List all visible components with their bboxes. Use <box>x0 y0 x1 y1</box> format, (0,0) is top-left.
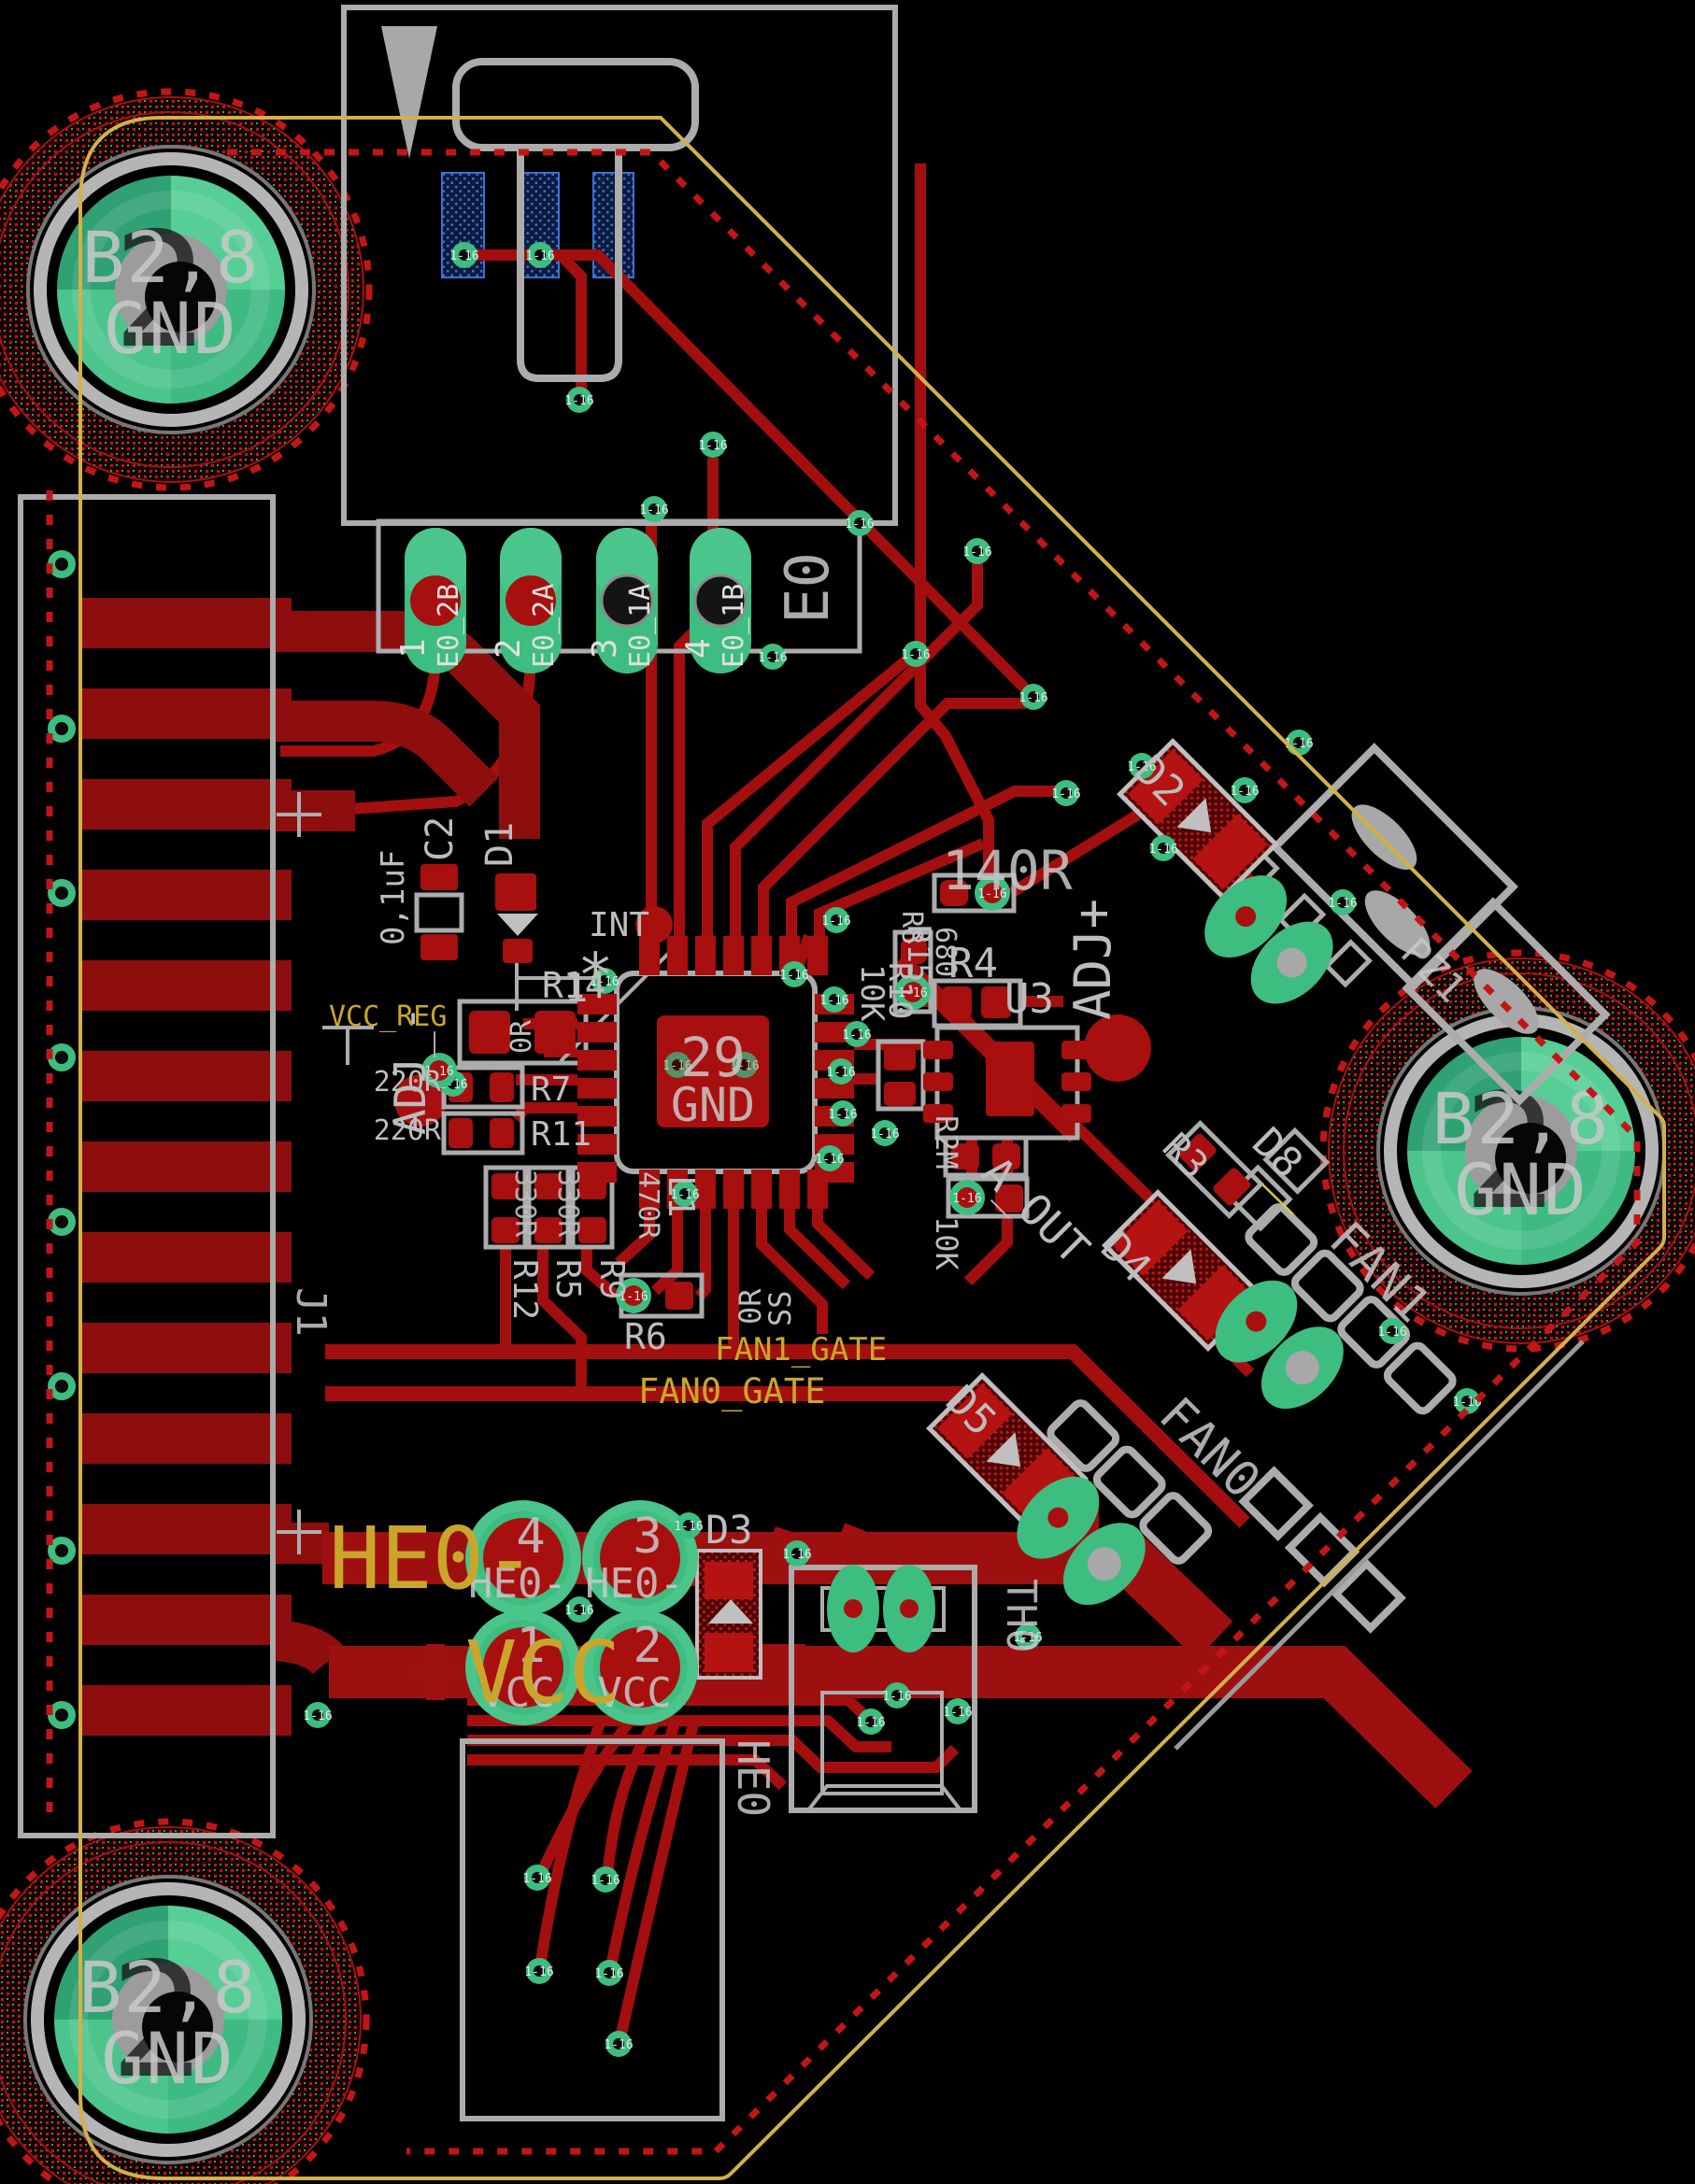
ref-r4: R4 <box>948 940 998 987</box>
val-r15: 140R <box>942 839 1073 902</box>
ref-u3: U3 <box>1004 975 1054 1023</box>
val-c2: 0,1uF <box>375 850 412 945</box>
ref-th0: TH0 <box>997 1579 1045 1652</box>
ref-r9: R9 <box>592 1259 631 1299</box>
pcb-layout-view: 1-16 1-16 2 B2,8 GND <box>0 0 1695 2184</box>
net-fan1-gate: FAN1_GATE <box>715 1331 887 1369</box>
net-vcc-reg: VCC_REG <box>329 1000 447 1033</box>
pad-number: 1 <box>394 638 433 659</box>
pad-net: HE0- <box>585 1560 684 1608</box>
ref-r8: R8 <box>895 911 928 944</box>
ref-r5: R5 <box>548 1259 587 1299</box>
pad-number: 2 <box>633 1618 662 1674</box>
ref-d3: D3 <box>705 1507 753 1553</box>
pad-net: E0_1B <box>718 584 750 668</box>
val-r2m: 10K <box>929 1216 964 1271</box>
ref-r6: R6 <box>624 1316 667 1357</box>
net-vcc: VCC <box>465 1623 620 1723</box>
pad-net: E0_2B <box>433 584 465 668</box>
net-fan0-gate: FAN0_GATE <box>638 1371 825 1412</box>
val-r9: 470R <box>632 1171 664 1240</box>
pad-net: E0_1A <box>624 584 657 668</box>
ref-r10: R10 <box>881 962 919 1019</box>
pad-number: 3 <box>586 638 624 659</box>
ref-he0: HE0 <box>728 1739 778 1817</box>
net-ss: SS <box>762 1290 798 1326</box>
ref-j1: J1 <box>287 1287 335 1337</box>
pad-number: 4 <box>679 638 718 659</box>
ref-r2m: R2M <box>929 1115 964 1170</box>
ref-r7: R7 <box>531 1071 571 1109</box>
component-d3 <box>697 1551 761 1678</box>
net-he0-minus: HE0- <box>329 1509 536 1609</box>
pcb-canvas[interactable]: 1-16 1-16 2 B2,8 GND <box>0 0 1695 2184</box>
val-r12: 330R <box>508 1170 541 1238</box>
pad-number: 2 <box>490 638 528 659</box>
ref-r11: R11 <box>531 1115 591 1154</box>
ref-r14: R14 <box>542 965 606 1006</box>
pad-number: 3 <box>633 1509 662 1565</box>
ref-d1: D1 <box>478 822 521 867</box>
int-label: INT <box>589 906 649 944</box>
ref-l1: L1 <box>661 1175 702 1218</box>
net-adj-plus: ADJ+ <box>1063 899 1122 1020</box>
ref-c2: C2 <box>419 816 462 861</box>
ref-e0: E0 <box>774 552 843 624</box>
pad-net: E0_2A <box>528 584 561 668</box>
ic-pad-net: GND <box>671 1078 755 1132</box>
val-r14: 0R <box>506 1019 538 1054</box>
ref-r12: R12 <box>506 1259 544 1320</box>
val-r5: 330R <box>551 1170 584 1238</box>
